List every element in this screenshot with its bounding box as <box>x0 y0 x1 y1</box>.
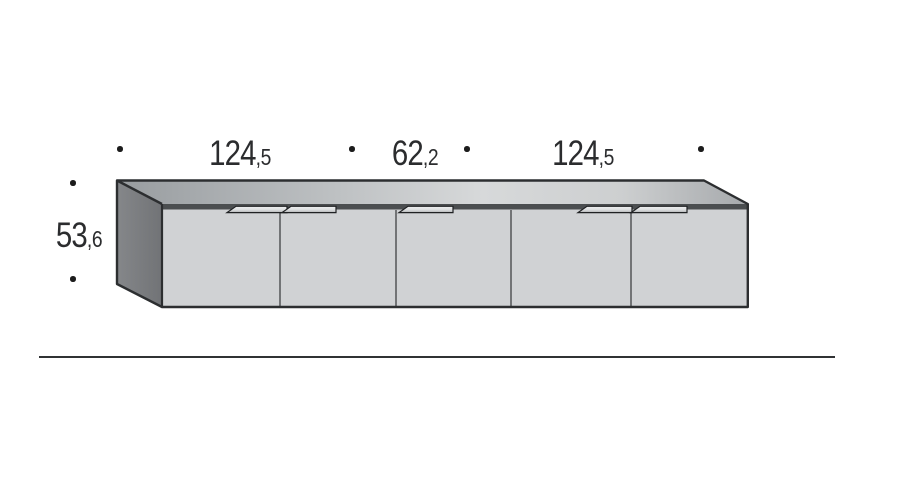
dimension-value: 124 <box>552 134 599 173</box>
door-handle-4 <box>578 206 632 212</box>
door-handle-1 <box>227 206 287 212</box>
dimension-label-height: 53,6 <box>12 218 146 257</box>
cabinet-door-front <box>162 210 748 308</box>
dimension-decimal: ,2 <box>423 144 438 170</box>
dimension-dot-left-top <box>70 180 76 186</box>
furniture-dimension-diagram: 124,5 62,2 124,5 53,6 <box>0 0 915 484</box>
dimension-label-center-width: 62,2 <box>348 136 482 175</box>
dimension-decimal: ,6 <box>87 226 102 252</box>
dimension-value: 53 <box>56 216 87 255</box>
dimension-dot-top-4 <box>698 146 704 152</box>
door-handle-3 <box>399 206 453 212</box>
dimension-value: 124 <box>209 134 256 173</box>
dimension-label-left-width: 124,5 <box>173 136 307 175</box>
dimension-decimal: ,5 <box>599 144 614 170</box>
dimension-dot-top-1 <box>117 146 123 152</box>
dimension-label-right-width: 124,5 <box>516 136 650 175</box>
cabinet-top-surface <box>117 181 748 205</box>
door-handle-5 <box>631 206 687 212</box>
door-handle-2 <box>282 206 336 212</box>
dimension-value: 62 <box>392 134 423 173</box>
ground-line <box>39 356 835 358</box>
dimension-decimal: ,5 <box>256 144 271 170</box>
dimension-dot-left-bottom <box>70 276 76 282</box>
